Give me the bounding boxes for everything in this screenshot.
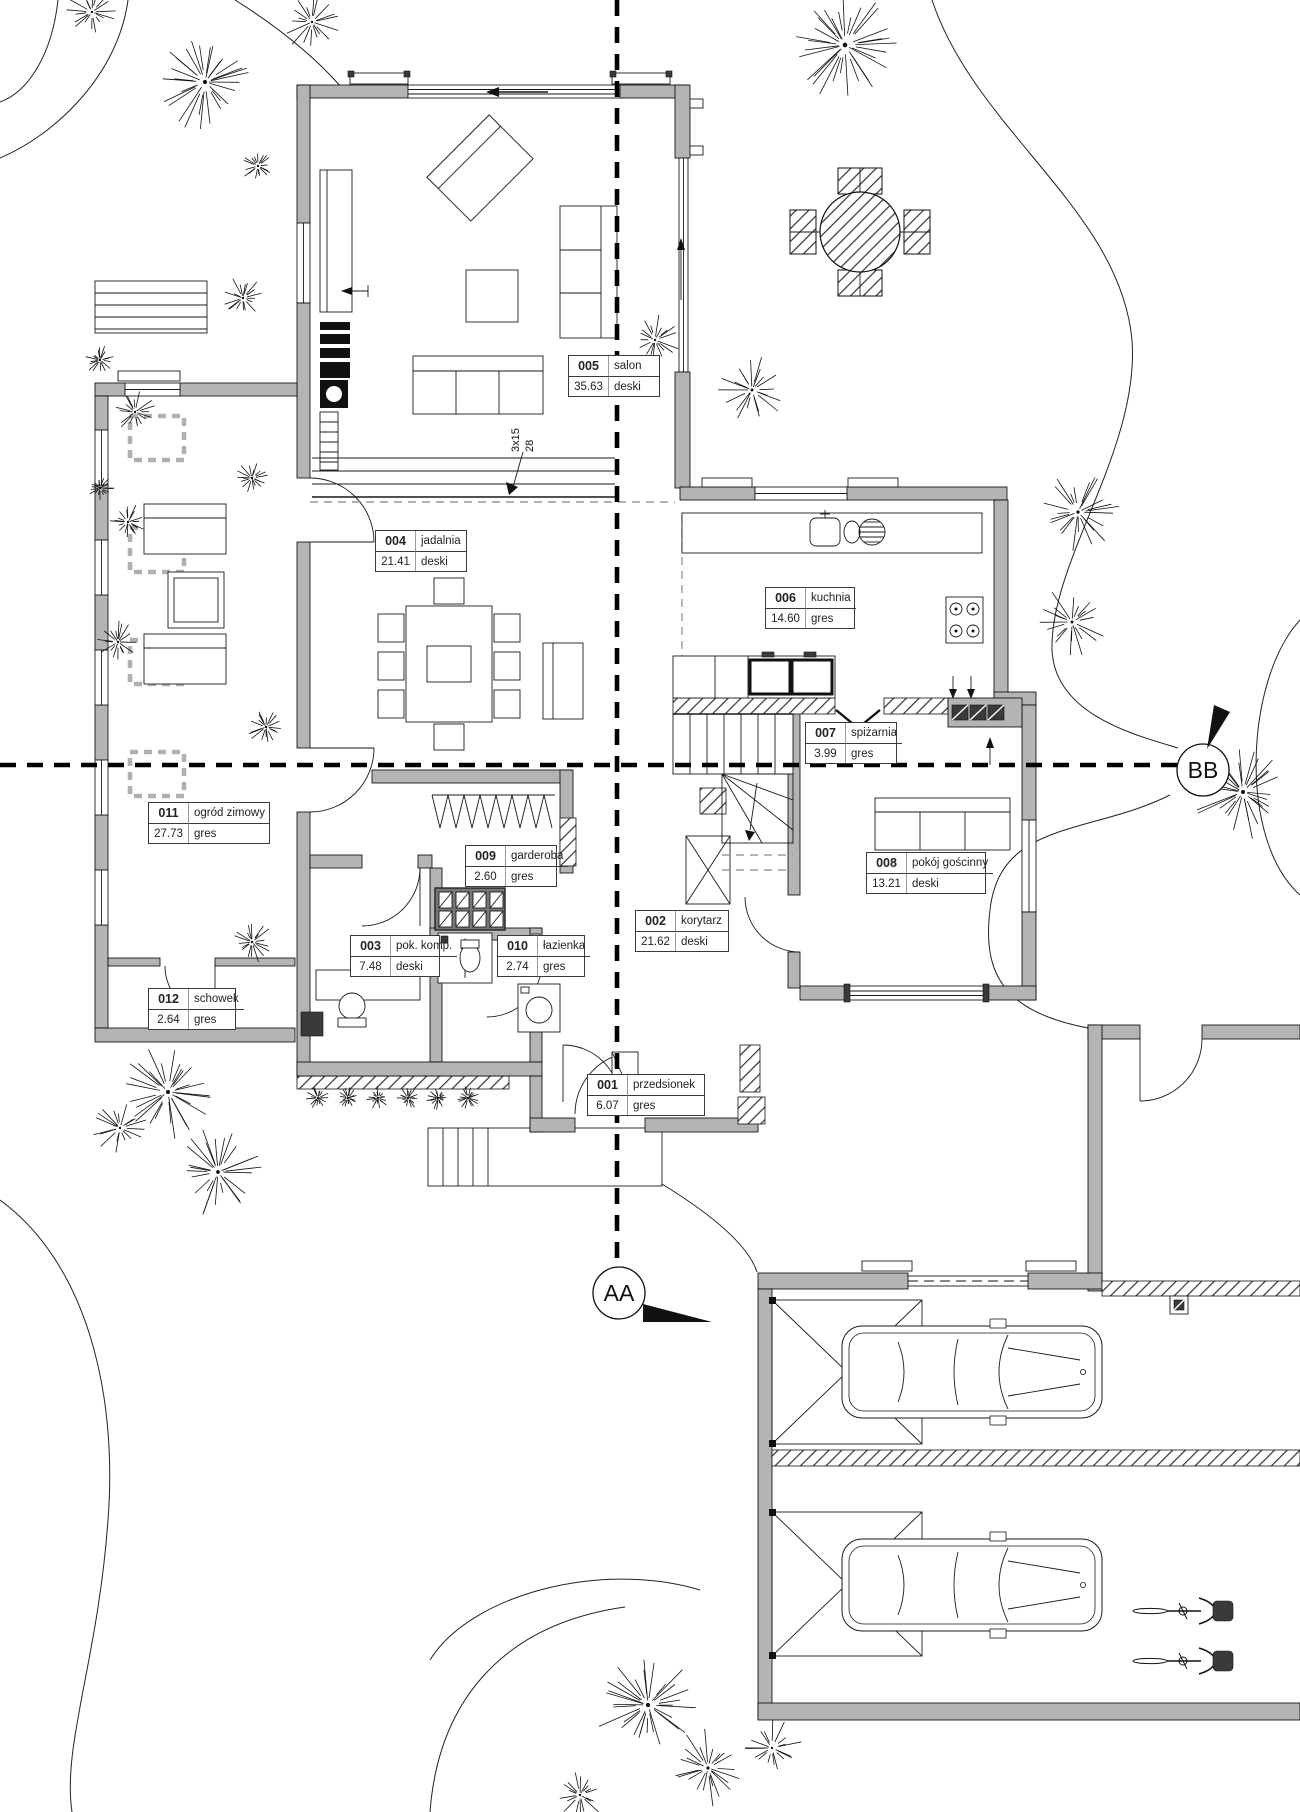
section-label-aa: AA	[604, 1280, 635, 1306]
room-number: 002	[636, 911, 676, 932]
winter-garden-furniture	[130, 416, 226, 796]
room-number: 004	[376, 531, 416, 552]
room-floor: deski	[416, 552, 466, 572]
bicycle-2	[1133, 1648, 1233, 1674]
room-label-001: 001 przedsionek 6.07 gres	[587, 1074, 705, 1116]
room-name: pokój gościnny	[907, 853, 993, 874]
trees	[67, 0, 1278, 1812]
room-floor: gres	[538, 957, 590, 977]
room-label-006: 006 kuchnia 14.60 gres	[765, 587, 855, 629]
room-number: 009	[466, 846, 506, 867]
stair-note-riser: 3x15	[510, 428, 522, 452]
room-floor: gres	[806, 609, 856, 629]
bicycle-1	[1133, 1598, 1233, 1624]
room-floor: deski	[676, 932, 728, 952]
room-area: 2.64	[149, 1010, 189, 1030]
room-label-012: 012 schowek 2.64 gres	[148, 988, 236, 1030]
garage	[769, 1297, 1233, 1674]
section-marker-aa: AA	[593, 1267, 712, 1322]
room-area: 21.62	[636, 932, 676, 952]
room-floor: gres	[846, 744, 902, 764]
room-floor: gres	[628, 1096, 704, 1116]
room-name: schowek	[189, 989, 244, 1010]
stair-note-tread: 28	[524, 440, 536, 452]
room-name: spiżarnia	[846, 723, 902, 744]
room-number: 005	[569, 356, 609, 377]
room-name: korytarz	[676, 911, 728, 932]
room-number: 008	[867, 853, 907, 874]
room-name: przedsionek	[628, 1075, 704, 1096]
room-number: 003	[351, 936, 391, 957]
room-label-009: 009 garderoba 2.60 gres	[465, 845, 557, 887]
room-number: 012	[149, 989, 189, 1010]
flowerbed-band	[297, 1076, 509, 1089]
room-floor: deski	[391, 957, 457, 977]
room-number: 001	[588, 1075, 628, 1096]
room-area: 2.60	[466, 867, 506, 887]
room-label-007: 007 spiżarnia 3.99 gres	[805, 722, 897, 764]
room-label-004: 004 jadalnia 21.41 deski	[375, 530, 467, 572]
section-label-bb: BB	[1188, 757, 1219, 783]
room-area: 14.60	[766, 609, 806, 629]
room-name: kuchnia	[806, 588, 856, 609]
room-number: 011	[149, 803, 189, 824]
room-number: 010	[498, 936, 538, 957]
room-area: 7.48	[351, 957, 391, 977]
dining-set	[378, 578, 583, 750]
room-name: pok. komp.	[391, 936, 457, 957]
computer-room-furniture	[301, 970, 420, 1036]
floor-plan-canvas: 3x15 28	[0, 0, 1300, 1812]
room-name: salon	[609, 356, 659, 377]
salon-furniture	[320, 87, 685, 470]
garden-steps	[95, 281, 207, 333]
car-2	[842, 1532, 1102, 1638]
room-number: 007	[806, 723, 846, 744]
room-floor: deski	[609, 377, 659, 397]
room-label-008: 008 pokój gościnny 13.21 deski	[866, 852, 986, 894]
room-area: 2.74	[498, 957, 538, 977]
room-label-010: 010 łazienka 2.74 gres	[497, 935, 585, 977]
room-label-003: 003 pok. komp. 7.48 deski	[350, 935, 440, 977]
room-name: łazienka	[538, 936, 590, 957]
room-label-011: 011 ogród zimowy 27.73 gres	[148, 802, 270, 844]
guest-room-furniture	[875, 798, 1010, 850]
car-1	[842, 1319, 1102, 1425]
room-area: 3.99	[806, 744, 846, 764]
room-name: garderoba	[506, 846, 568, 867]
entry-porch	[428, 1128, 662, 1186]
room-floor: deski	[907, 874, 993, 894]
section-marker-bb: BB	[1177, 705, 1230, 796]
room-area: 13.21	[867, 874, 907, 894]
room-floor: gres	[506, 867, 568, 887]
room-label-002: 002 korytarz 21.62 deski	[635, 910, 729, 952]
garden-paths	[0, 0, 1300, 1812]
room-area: 35.63	[569, 377, 609, 397]
room-number: 006	[766, 588, 806, 609]
room-area: 21.41	[376, 552, 416, 572]
outdoor-dining-set	[790, 168, 930, 296]
room-area: 6.07	[588, 1096, 628, 1116]
floor-plan-drawing: 3x15 28	[0, 0, 1300, 1812]
room-label-005: 005 salon 35.63 deski	[568, 355, 660, 397]
room-name: jadalnia	[416, 531, 466, 552]
room-area: 27.73	[149, 824, 189, 844]
room-name: ogród zimowy	[189, 803, 270, 824]
room-floor: gres	[189, 824, 270, 844]
room-floor: gres	[189, 1010, 244, 1030]
